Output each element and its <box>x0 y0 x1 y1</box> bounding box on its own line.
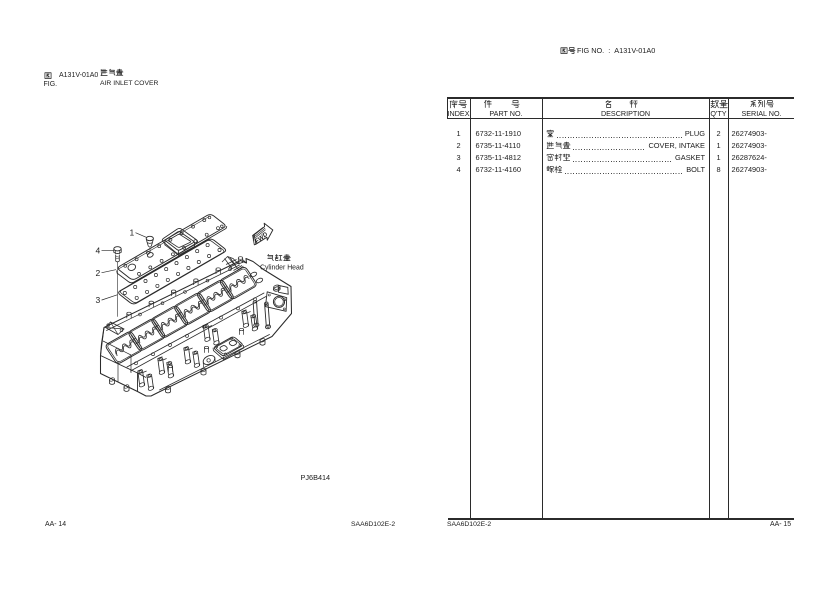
svg-text:4: 4 <box>96 246 101 256</box>
svg-text:1: 1 <box>130 228 135 238</box>
svg-text:PJ6B414: PJ6B414 <box>301 473 331 482</box>
svg-text:3: 3 <box>96 295 101 305</box>
svg-text:Cylinder Head: Cylinder Head <box>260 265 304 272</box>
svg-text:2: 2 <box>96 268 101 278</box>
